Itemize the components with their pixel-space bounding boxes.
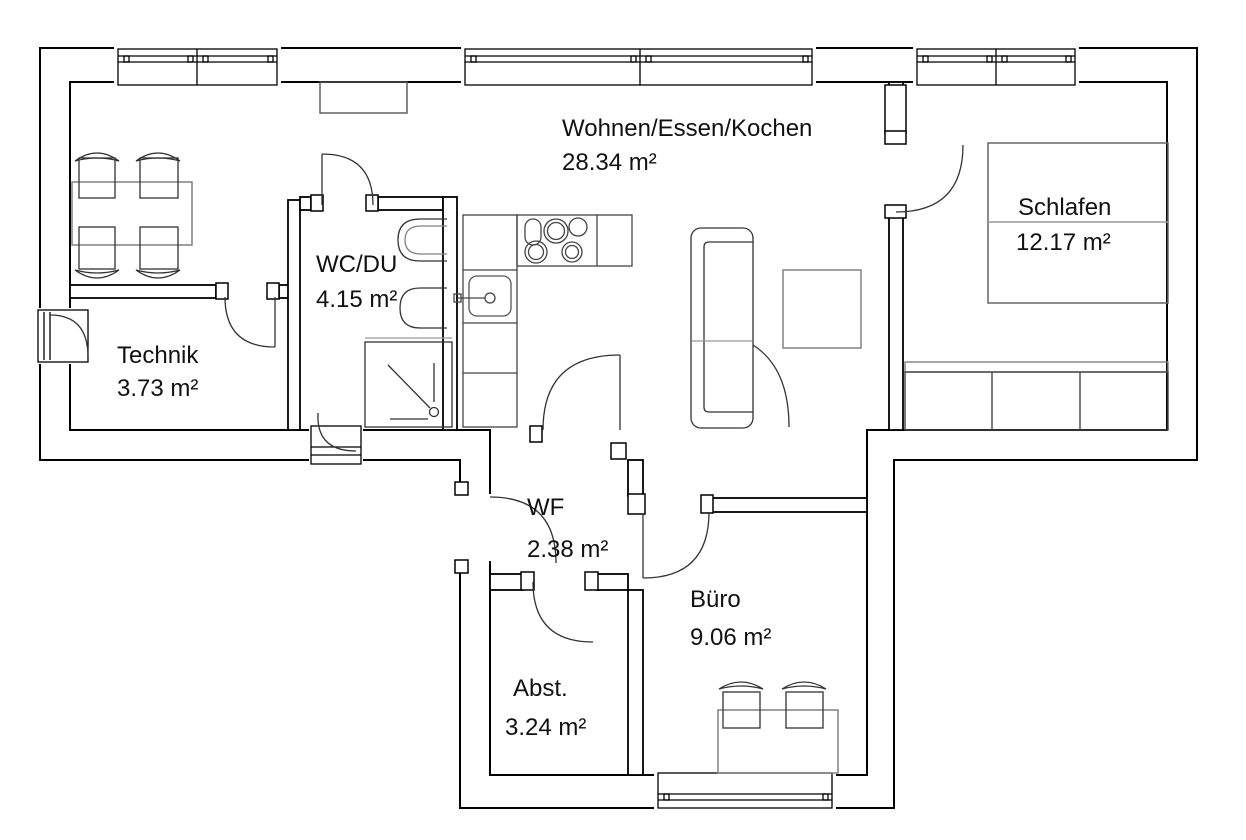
wf-east-wall: [628, 460, 643, 496]
post: [366, 195, 378, 211]
room-area-schlafen: 12.17 m²: [1016, 229, 1111, 256]
abst-east-wall: [628, 590, 643, 775]
opening-buero-window: [654, 773, 836, 810]
post: [530, 426, 542, 442]
wcdu-north-wall-1: [300, 197, 311, 210]
wcdu-west-wall: [288, 200, 300, 430]
room-label-abst: Abst.: [513, 675, 568, 702]
room-area-wohnen: 28.34 m²: [562, 149, 657, 176]
opening-door-bottomleft: [309, 428, 363, 462]
floorplan-canvas: Wohnen/Essen/Kochen 28.34 m² Schlafen 12…: [0, 0, 1246, 840]
post: [628, 494, 645, 514]
post: [455, 482, 468, 495]
room-area-wcdu: 4.15 m²: [316, 286, 397, 313]
opening-window-center: [461, 46, 816, 84]
post: [216, 283, 228, 299]
wcdu-north-wall-2: [378, 197, 443, 210]
room-area-abst: 3.24 m²: [505, 714, 586, 741]
post: [267, 283, 279, 299]
room-area-technik: 3.73 m²: [117, 375, 198, 402]
partition-sidelight: [885, 85, 906, 133]
bedroom-door-opening: [886, 143, 906, 214]
opening-door-left: [38, 308, 72, 364]
post: [311, 195, 323, 211]
post: [521, 572, 534, 590]
abst-north-wall-1: [490, 574, 523, 590]
post: [455, 560, 468, 573]
abst-north-wall-2: [597, 574, 628, 590]
room-label-wohnen: Wohnen/Essen/Kochen: [562, 115, 812, 142]
wcdu-east-wall: [443, 197, 457, 430]
floorplan-drawing: Wohnen/Essen/Kochen 28.34 m² Schlafen 12…: [0, 0, 1246, 840]
post: [885, 131, 906, 144]
room-label-buero: Büro: [690, 586, 741, 613]
room-area-wf: 2.38 m²: [527, 536, 608, 563]
technik-north-wall: [70, 285, 216, 298]
buero-north-wall: [710, 498, 867, 512]
opening-wf-wohnen: [541, 428, 622, 462]
room-label-wf: WF: [527, 494, 564, 521]
room-label-technik: Technik: [117, 342, 199, 369]
room-area-buero: 9.06 m²: [690, 624, 771, 651]
opening-entrance: [458, 494, 492, 561]
post: [585, 572, 598, 590]
post: [611, 443, 626, 459]
room-label-schlafen: Schlafen: [1018, 194, 1111, 221]
post: [701, 495, 713, 513]
room-label-wcdu: WC/DU: [316, 251, 397, 278]
